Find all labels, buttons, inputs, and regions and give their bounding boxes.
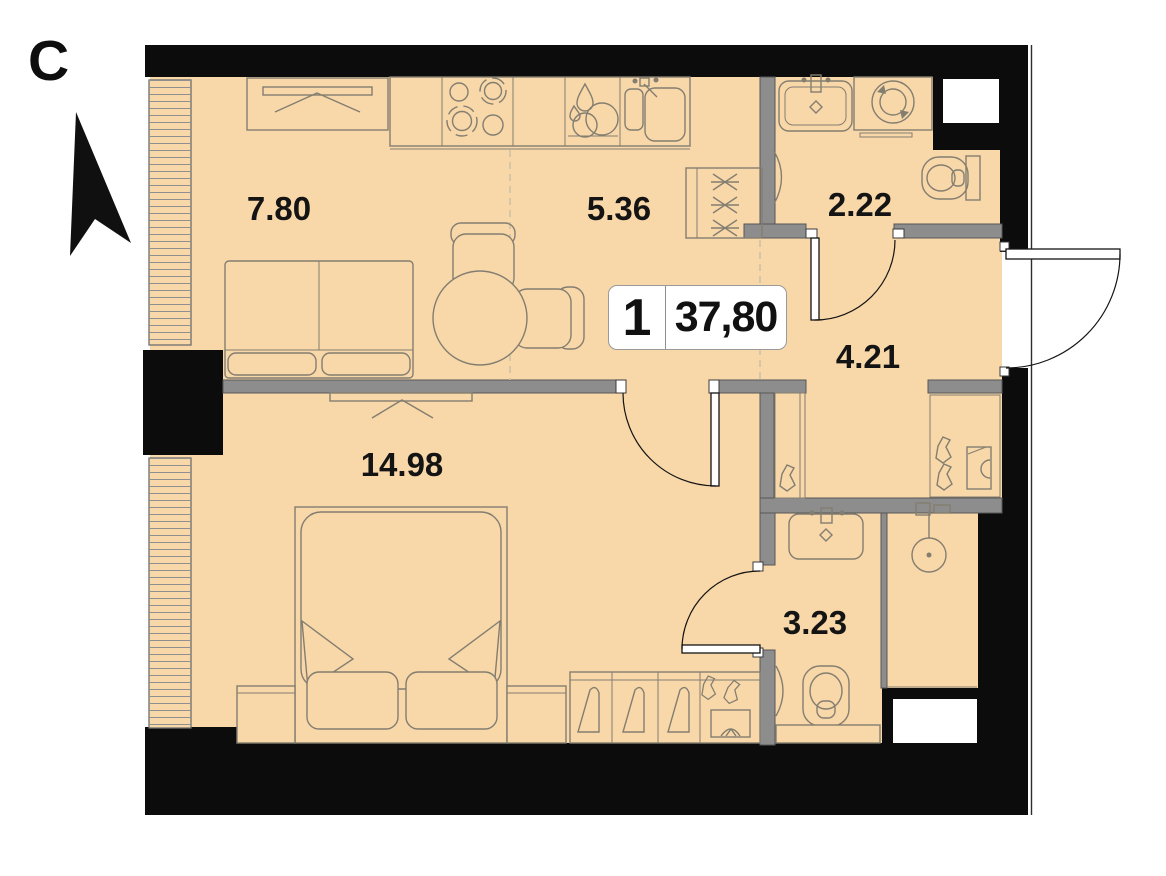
bathroom-master-door-leaf bbox=[682, 645, 760, 653]
room-area-kitchen-zone: 5.36 bbox=[559, 190, 679, 228]
wall-bottom bbox=[145, 743, 1028, 815]
wall-top bbox=[145, 45, 1028, 77]
unit-badge: 1 37,80 bbox=[608, 285, 787, 350]
ventilation-shaft-bottom bbox=[893, 699, 977, 743]
floor-plan-drawing bbox=[0, 0, 1166, 876]
double-bed bbox=[295, 507, 507, 743]
unit-number: 1 bbox=[609, 286, 666, 349]
sofa bbox=[225, 261, 413, 378]
room-area-bathroom-guest: 2.22 bbox=[800, 186, 920, 224]
entrance-door-leaf bbox=[1006, 249, 1120, 259]
pillow bbox=[307, 672, 398, 729]
apartment-floor bbox=[150, 75, 1002, 745]
bathroom-guest-door-leaf bbox=[811, 238, 819, 320]
wall-right-lower bbox=[978, 513, 1028, 690]
window-bedroom bbox=[149, 458, 191, 728]
room-area-hallway: 4.21 bbox=[808, 338, 928, 376]
duct-ledge bbox=[776, 725, 880, 743]
wall-left-block bbox=[143, 350, 223, 455]
wall-right-upper bbox=[1000, 77, 1028, 252]
bedroom-door-leaf bbox=[711, 393, 719, 486]
wardrobe bbox=[570, 672, 760, 743]
kitchen-counter bbox=[390, 77, 690, 149]
pillow bbox=[406, 672, 497, 729]
room-area-bedroom: 14.98 bbox=[342, 446, 462, 484]
north-label: С bbox=[28, 28, 69, 94]
dining-table bbox=[433, 271, 527, 365]
ventilation-shaft-top bbox=[943, 79, 999, 123]
unit-total-area: 37,80 bbox=[666, 286, 786, 349]
window-living bbox=[149, 80, 191, 345]
floor-plan: С 7.80 5.36 2.22 4.21 14.98 3.23 1 37,80 bbox=[0, 0, 1166, 876]
entrance-door-swing bbox=[1006, 254, 1120, 368]
north-arrow-icon bbox=[70, 112, 131, 256]
room-area-living-kitchen: 7.80 bbox=[219, 190, 339, 228]
wall-right-mid bbox=[1002, 368, 1028, 513]
tv-console-living bbox=[247, 78, 388, 130]
room-area-bathroom-master: 3.23 bbox=[755, 604, 875, 642]
wall-bottom-left-step bbox=[145, 727, 237, 745]
